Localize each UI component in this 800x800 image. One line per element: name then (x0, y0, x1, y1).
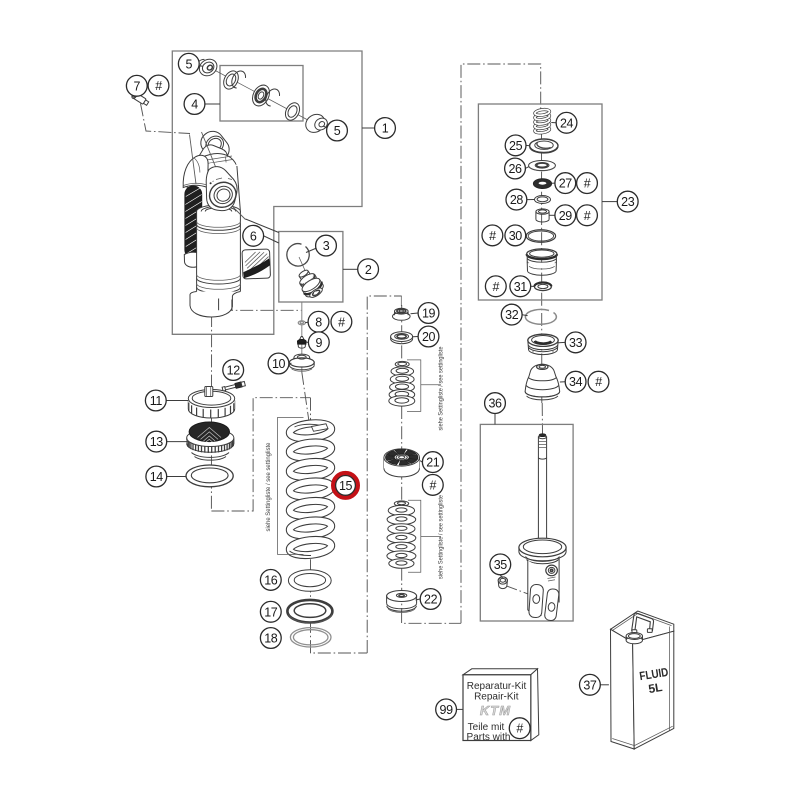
svg-text:#: # (489, 229, 496, 243)
svg-text:#: # (516, 722, 523, 736)
svg-text:14: 14 (150, 470, 164, 484)
svg-text:19: 19 (422, 307, 436, 321)
svg-text:#: # (155, 79, 162, 93)
svg-text:21: 21 (426, 456, 440, 470)
svg-text:36: 36 (488, 397, 502, 411)
svg-text:29: 29 (559, 209, 573, 223)
svg-text:30: 30 (509, 229, 523, 243)
svg-text:#: # (493, 280, 500, 294)
svg-text:37: 37 (583, 678, 597, 692)
svg-text:32: 32 (505, 308, 519, 322)
svg-text:5: 5 (186, 57, 193, 71)
svg-text:24: 24 (560, 116, 574, 130)
svg-text:25: 25 (509, 139, 523, 153)
svg-text:Repair-Kit: Repair-Kit (474, 692, 519, 703)
svg-text:26: 26 (508, 162, 522, 176)
svg-text:Reparatur-Kit: Reparatur-Kit (467, 681, 527, 692)
svg-text:17: 17 (264, 605, 278, 619)
svg-text:35: 35 (494, 558, 508, 572)
svg-text:99: 99 (440, 703, 454, 717)
svg-text:28: 28 (510, 193, 524, 207)
svg-text:2: 2 (365, 263, 372, 277)
svg-text:8: 8 (315, 315, 322, 329)
svg-text:5: 5 (334, 124, 341, 138)
svg-text:1: 1 (382, 122, 389, 136)
svg-text:#: # (595, 375, 602, 389)
svg-text:31: 31 (514, 280, 528, 294)
svg-text:#: # (584, 209, 591, 223)
svg-text:34: 34 (569, 375, 583, 389)
svg-text:siehe Settingliste / see setti: siehe Settingliste / see settingliste (265, 442, 272, 531)
svg-text:#: # (584, 177, 591, 191)
svg-text:KTM: KTM (480, 703, 511, 718)
svg-text:10: 10 (272, 357, 286, 371)
svg-text:12: 12 (227, 364, 241, 378)
svg-text:4: 4 (191, 98, 198, 112)
svg-text:siehe Settingliste / see setti: siehe Settingliste / see settingliste (437, 495, 444, 579)
svg-text:siehe Settingliste / see setti: siehe Settingliste / see settingliste (437, 346, 444, 430)
svg-text:6: 6 (250, 229, 257, 243)
svg-text:11: 11 (150, 394, 163, 408)
svg-text:13: 13 (150, 435, 164, 449)
svg-text:23: 23 (621, 195, 635, 209)
svg-text:#: # (430, 478, 437, 492)
svg-text:Parts with: Parts with (467, 732, 511, 743)
svg-text:7: 7 (134, 79, 141, 93)
svg-text:16: 16 (264, 573, 278, 587)
svg-text:15: 15 (339, 479, 353, 493)
svg-text:18: 18 (264, 632, 278, 646)
svg-text:33: 33 (569, 336, 583, 350)
svg-text:22: 22 (424, 593, 438, 607)
svg-text:#: # (338, 315, 345, 329)
svg-text:9: 9 (316, 336, 323, 350)
svg-text:20: 20 (422, 330, 436, 344)
svg-text:5L: 5L (647, 680, 663, 696)
svg-text:27: 27 (559, 177, 573, 191)
svg-text:3: 3 (323, 239, 330, 253)
